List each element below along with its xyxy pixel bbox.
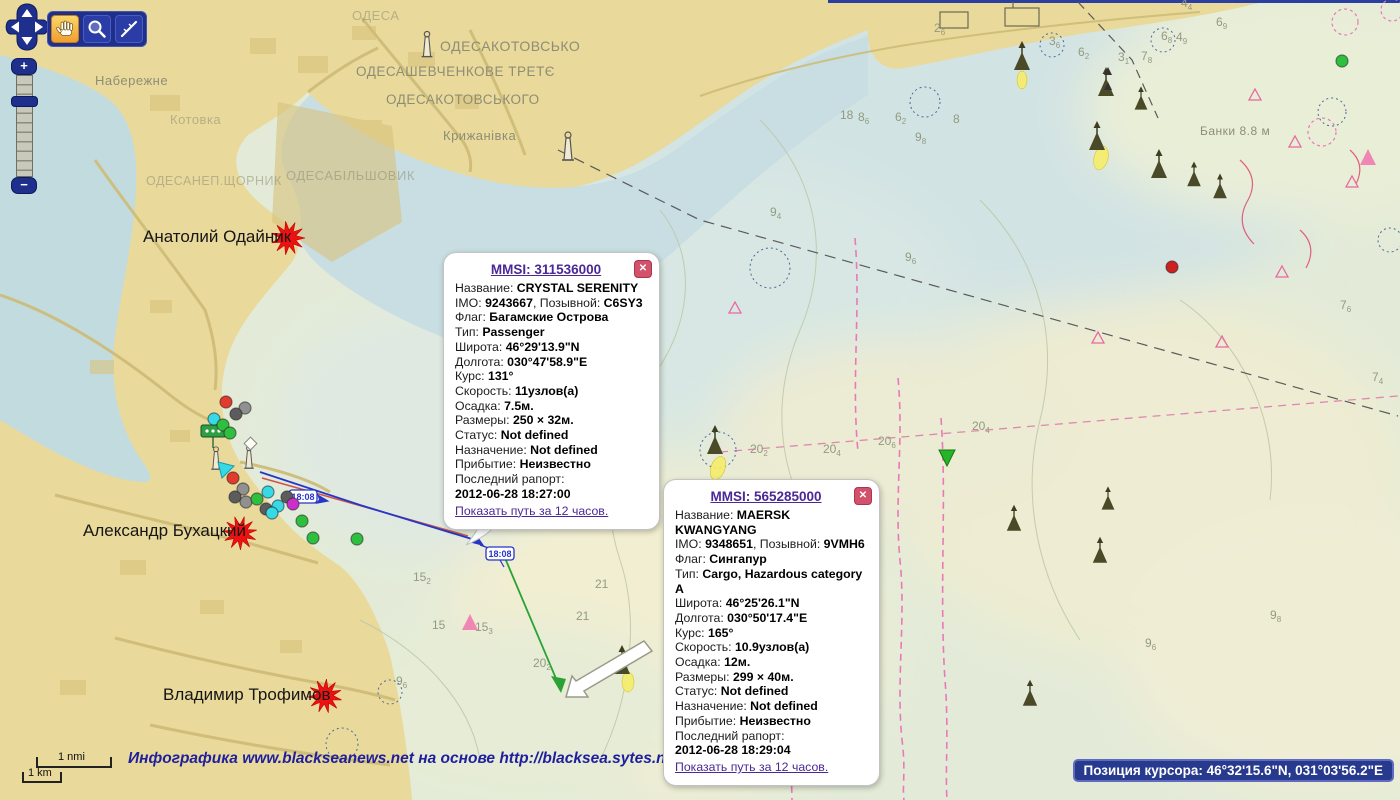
close-icon[interactable]: ✕ (854, 487, 872, 505)
map-tile-edge (828, 0, 1400, 3)
detail-row: IMO: 9348651, Позывной: 9VMH6 (675, 537, 871, 552)
mmsi-link[interactable]: MMSI: 565285000 (675, 489, 857, 504)
vessel-dot[interactable] (1166, 261, 1178, 273)
place-label: ОДЕСАШЕВЧЕНКОВЕ ТРЕТЄ (356, 64, 555, 79)
journalist-name-label: Владимир Трофимов (163, 685, 331, 705)
detail-row: Размеры: 299 × 40м. (675, 670, 871, 685)
detail-row: Прибытие: Неизвестно (675, 714, 871, 729)
detail-row: Название: MAERSK KWANGYANG (675, 508, 871, 537)
zoom-slider[interactable]: + − (11, 58, 37, 194)
place-label: Набережне (95, 73, 168, 88)
depth-sounding: 21 (576, 609, 590, 623)
detail-row: Последний рапорт: (675, 729, 871, 744)
detail-row: Флаг: Багамские Острова (455, 310, 651, 325)
place-label: Крижанівка (443, 128, 516, 143)
vessel-popup-maersk-kwangyang: MMSI: 565285000 ✕ Название: MAERSK KWANG… (663, 479, 880, 786)
zoom-handle[interactable] (11, 96, 38, 107)
place-label: Котовка (170, 112, 221, 127)
detail-row: Назначение: Not defined (455, 443, 651, 458)
detail-row: 2012-06-28 18:29:04 (675, 743, 871, 758)
vessel-dot[interactable] (307, 532, 319, 544)
detail-row: Тип: Passenger (455, 325, 651, 340)
detail-row: Скорость: 11узлов(а) (455, 384, 651, 399)
measure-tool-button[interactable] (115, 15, 143, 43)
vessel-popup-crystal-serenity: MMSI: 311536000 ✕ Название: CRYSTAL SERE… (443, 252, 660, 530)
vessel-dot[interactable] (227, 472, 239, 484)
detail-row: Статус: Not defined (675, 684, 871, 699)
detail-row: Широта: 46°25'26.1"N (675, 596, 871, 611)
harbour-diamond-icon (244, 437, 257, 450)
zoom-track[interactable] (16, 75, 33, 177)
vessel-dot[interactable] (224, 427, 236, 439)
detail-row: Курс: 165° (675, 626, 871, 641)
ruler-icon (118, 18, 140, 40)
detail-row: Размеры: 250 × 32м. (455, 413, 651, 428)
close-icon[interactable]: ✕ (634, 260, 652, 278)
vessel-dot[interactable] (251, 493, 263, 505)
vessel-dot[interactable] (229, 491, 241, 503)
detail-row: Последний рапорт: (455, 472, 651, 487)
attribution-text: Инфографика www.blackseanews.net на осно… (128, 750, 679, 768)
depth-sounding: 152 (413, 570, 431, 586)
vessel-dot[interactable] (230, 408, 242, 420)
detail-row: Прибытие: Неизвестно (455, 457, 651, 472)
map-toolbar (47, 11, 147, 47)
detail-row: Осадка: 7.5м. (455, 399, 651, 414)
detail-row: Широта: 46°29'13.9"N (455, 340, 651, 355)
place-label: ОДЕСАБІЛЬШОВИК (286, 168, 415, 183)
vessel-dot[interactable] (287, 498, 299, 510)
detail-row: Статус: Not defined (455, 428, 651, 443)
journalist-name-label: Александр Бухацкий (83, 521, 246, 541)
detail-row: Курс: 131° (455, 369, 651, 384)
place-label: ОДЕСАКОТОВСЬКО (440, 38, 580, 54)
vessel-dot[interactable] (266, 507, 278, 519)
vessel-dot[interactable] (351, 533, 363, 545)
nautical-chart-map[interactable]: 18:08 18:08 1886629882636623178684944699… (0, 0, 1400, 800)
depth-sounding: 21 (595, 577, 609, 591)
show-path-link[interactable]: Показать путь за 12 часов. (455, 504, 608, 518)
detail-row: Осадка: 12м. (675, 655, 871, 670)
place-label: ОДЕСА (352, 8, 400, 23)
detail-row: 2012-06-28 18:27:00 (455, 487, 651, 502)
hand-icon (54, 18, 76, 40)
place-label: ОДЕСАКОТОВСЬКОГО (386, 92, 540, 107)
vessel-dot[interactable] (262, 486, 274, 498)
vessel-dot[interactable] (240, 496, 252, 508)
journalist-name-label: Анатолий Одайник (143, 227, 291, 247)
vessel-dot[interactable] (1336, 55, 1348, 67)
depth-sounding: 74 (1372, 370, 1384, 386)
detail-row: Флаг: Сингапур (675, 552, 871, 567)
detail-row: Скорость: 10.9узлов(а) (675, 640, 871, 655)
show-path-link[interactable]: Показать путь за 12 часов. (675, 760, 828, 774)
detail-row: Тип: Cargo, Hazardous category A (675, 567, 871, 596)
vessel-details: Название: CRYSTAL SERENITYIMO: 9243667, … (455, 281, 651, 502)
mmsi-link[interactable]: MMSI: 311536000 (455, 262, 637, 277)
vessel-dot[interactable] (220, 396, 232, 408)
depth-sounding: 76 (1340, 298, 1352, 314)
magnifier-icon (86, 18, 108, 40)
scale-bar: 1 nmi 1 km (22, 752, 122, 792)
detail-row: Назначение: Not defined (675, 699, 871, 714)
vessel-dot[interactable] (296, 515, 308, 527)
detail-row: Долгота: 030°50'17.4"E (675, 611, 871, 626)
detail-row: Долгота: 030°47'58.9"E (455, 355, 651, 370)
zoom-tool-button[interactable] (83, 15, 111, 43)
pan-tool-button[interactable] (51, 15, 79, 43)
pan-compass[interactable] (4, 3, 50, 51)
depth-sounding: 8 (953, 112, 960, 126)
cursor-position-readout: Позиция курсора: 46°32'15.6"N, 031°03'56… (1073, 759, 1395, 782)
detail-row: IMO: 9243667, Позывной: C6SY3 (455, 296, 651, 311)
place-label: Банки 8.8 м (1200, 124, 1270, 138)
depth-sounding: 18 (840, 108, 854, 122)
zoom-out-button[interactable]: − (11, 177, 37, 194)
place-label: ОДЕСАНЕП.ЩОРНИК (146, 174, 282, 188)
vessel-details: Название: MAERSK KWANGYANGIMO: 9348651, … (675, 508, 871, 758)
detail-row: Название: CRYSTAL SERENITY (455, 281, 651, 296)
zoom-in-button[interactable]: + (11, 58, 37, 75)
depth-sounding: 15 (432, 618, 446, 632)
